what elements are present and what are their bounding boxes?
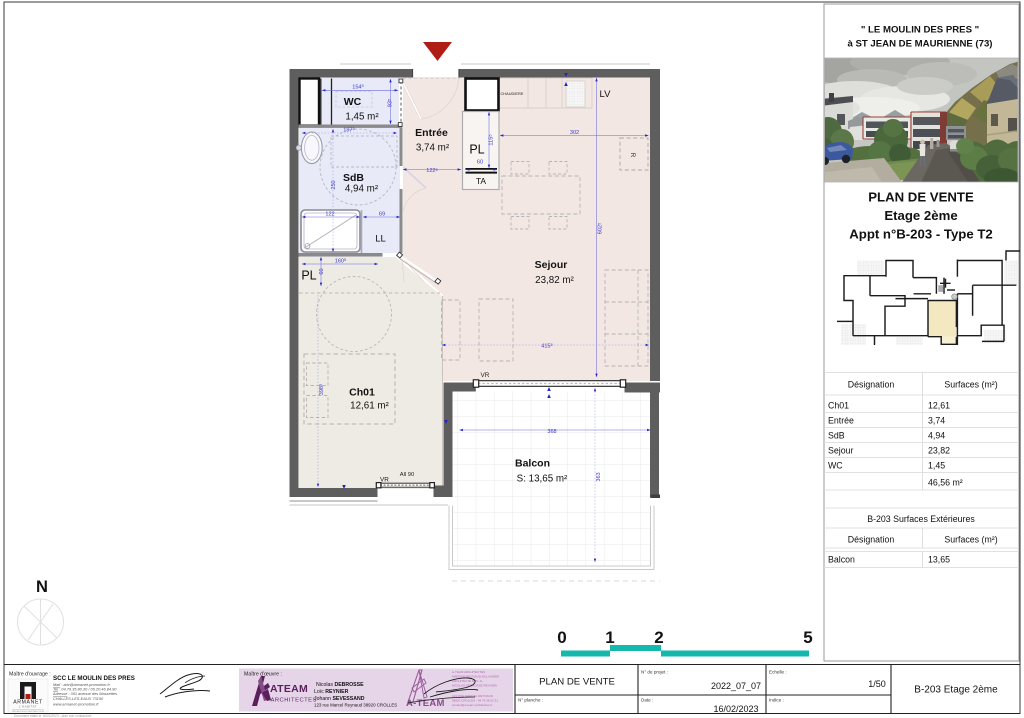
svg-text:363: 363 <box>596 472 602 481</box>
svg-text:1: 1 <box>605 628 614 647</box>
svg-text:60: 60 <box>319 268 325 274</box>
svg-text:5: 5 <box>803 628 812 647</box>
svg-text:All 90: All 90 <box>400 472 415 478</box>
svg-text:4,94: 4,94 <box>928 431 945 441</box>
svg-text:250: 250 <box>331 180 337 189</box>
svg-text:Balcon: Balcon <box>515 458 550 470</box>
svg-text:WC: WC <box>828 461 843 471</box>
svg-text:Ch01: Ch01 <box>349 387 375 399</box>
svg-text:A-TEAM: A-TEAM <box>406 698 445 709</box>
svg-text:Maître d'ouvrage :: Maître d'ouvrage : <box>9 672 51 678</box>
svg-text:3,74: 3,74 <box>928 416 945 426</box>
svg-text:Désignation: Désignation <box>848 535 895 545</box>
svg-text:Désignation: Désignation <box>848 380 895 390</box>
svg-text:Entrée: Entrée <box>415 127 448 139</box>
svg-text:2: 2 <box>654 628 663 647</box>
svg-text:CHALLES-LES-EAUX 73190: CHALLES-LES-EAUX 73190 <box>53 696 104 701</box>
svg-text:CHAUDIERE: CHAUDIERE <box>501 91 524 96</box>
svg-text:S: 13,65 m²: S: 13,65 m² <box>517 474 568 485</box>
svg-text:368: 368 <box>547 429 556 435</box>
svg-text:LL: LL <box>375 234 386 245</box>
svg-text:N° de projet :: N° de projet : <box>641 670 668 675</box>
svg-text:1,45 m²: 1,45 m² <box>345 112 379 123</box>
svg-text:69: 69 <box>379 211 385 217</box>
svg-text:R: R <box>629 153 636 158</box>
svg-text:3,74 m²: 3,74 m² <box>416 143 450 154</box>
svg-text:ARCHITECTE D.P.L.G.: ARCHITECTE D.P.L.G. <box>452 679 483 683</box>
svg-text:Balcon: Balcon <box>828 555 855 565</box>
svg-text:VR: VR <box>380 477 389 484</box>
svg-text:60: 60 <box>477 159 483 165</box>
svg-text:www.armanet-promotion.fr: www.armanet-promotion.fr <box>53 701 99 706</box>
svg-text:0: 0 <box>557 628 566 647</box>
svg-text:1,45: 1,45 <box>928 461 945 471</box>
svg-text:PROMOTION CONSTRUCTION: PROMOTION CONSTRUCTION <box>12 711 44 713</box>
svg-text:PLAN DE VENTE: PLAN DE VENTE <box>868 190 974 205</box>
svg-text:ATEAM: ATEAM <box>270 683 308 695</box>
svg-text:Surfaces (m²): Surfaces (m²) <box>944 535 997 545</box>
svg-text:38920 CROLLES - 04 76 08 52 31: 38920 CROLLES - 04 76 08 52 31 <box>452 699 498 703</box>
svg-text:46,56 m²: 46,56 m² <box>928 478 963 488</box>
svg-text:Nicolas DEBROSSE: Nicolas DEBROSSE <box>316 682 364 688</box>
svg-text:302: 302 <box>570 130 579 136</box>
svg-text:" LE MOULIN DES PRES ": " LE MOULIN DES PRES " <box>861 25 979 36</box>
svg-text:VR: VR <box>481 372 490 379</box>
svg-text:Loïc REYNIER: Loïc REYNIER <box>314 689 349 695</box>
svg-text:16/02/2023: 16/02/2023 <box>713 704 758 714</box>
svg-text:N° planche :: N° planche : <box>518 698 543 703</box>
svg-text:Etage 2ème: Etage 2ème <box>884 208 957 223</box>
svg-text:Document établi le 16/02/2023: Document établi le 16/02/2023 - plan non… <box>14 714 92 718</box>
svg-text:12,61: 12,61 <box>928 401 950 411</box>
svg-text:A-TEAM ARCHITECTES: A-TEAM ARCHITECTES <box>452 670 485 674</box>
svg-text:Surfaces (m²): Surfaces (m²) <box>944 380 997 390</box>
svg-text:PLAN DE VENTE: PLAN DE VENTE <box>539 677 615 688</box>
svg-text:B-203 Etage 2ème: B-203 Etage 2ème <box>914 685 998 696</box>
svg-text:Johann SEVESSAND: Johann SEVESSAND <box>314 696 365 702</box>
svg-text:1/50: 1/50 <box>868 679 886 689</box>
svg-text:WC: WC <box>344 96 362 108</box>
svg-text:PL: PL <box>301 269 316 283</box>
svg-text:SCC LE MOULIN DES PRES: SCC LE MOULIN DES PRES <box>53 675 135 682</box>
svg-text:Ch01: Ch01 <box>828 401 849 411</box>
svg-text:PL: PL <box>469 143 484 157</box>
svg-text:Indice :: Indice : <box>769 698 784 703</box>
svg-text:L'HABITAT: L'HABITAT <box>19 705 37 709</box>
svg-text:à ST JEAN DE MAURIENNE (73): à ST JEAN DE MAURIENNE (73) <box>848 39 993 50</box>
svg-text:N: N <box>36 578 48 596</box>
svg-text:123 rue Marcel Reynaud 38920 C: 123 rue Marcel Reynaud 38920 CROLLES <box>314 703 397 708</box>
svg-text:TA: TA <box>476 176 487 186</box>
svg-text:122: 122 <box>325 211 334 217</box>
svg-text:2022_07_07: 2022_07_07 <box>711 681 761 691</box>
svg-text:Echelle :: Echelle : <box>769 670 787 675</box>
svg-text:Date :: Date : <box>641 698 653 703</box>
svg-text:Sejour: Sejour <box>535 259 568 271</box>
svg-text:contact@a-team-architectes.fr: contact@a-team-architectes.fr <box>452 703 492 707</box>
svg-text:12,61 m²: 12,61 m² <box>350 401 389 412</box>
svg-text:Appt n°B-203 - Type T2: Appt n°B-203 - Type T2 <box>849 227 993 242</box>
svg-text:SdB: SdB <box>828 431 845 441</box>
svg-text:MARTINE REYNAUD-DULAURIER: MARTINE REYNAUD-DULAURIER <box>452 675 500 679</box>
svg-text:LV: LV <box>600 89 612 100</box>
svg-text:4,94 m²: 4,94 m² <box>345 184 379 195</box>
svg-text:23,82: 23,82 <box>928 446 950 456</box>
svg-text:13,65: 13,65 <box>928 555 950 565</box>
svg-text:NICOLAS DEBROSSE REYNIER: NICOLAS DEBROSSE REYNIER <box>452 684 498 688</box>
svg-text:SdB: SdB <box>343 172 364 184</box>
svg-text:ARCHITECTES: ARCHITECTES <box>271 698 317 704</box>
svg-text:23,82 m²: 23,82 m² <box>535 275 574 286</box>
svg-text:B-203 Surfaces Extérieures: B-203 Surfaces Extérieures <box>867 514 975 524</box>
svg-text:Entrée: Entrée <box>828 416 854 426</box>
svg-text:Sejour: Sejour <box>828 446 853 456</box>
